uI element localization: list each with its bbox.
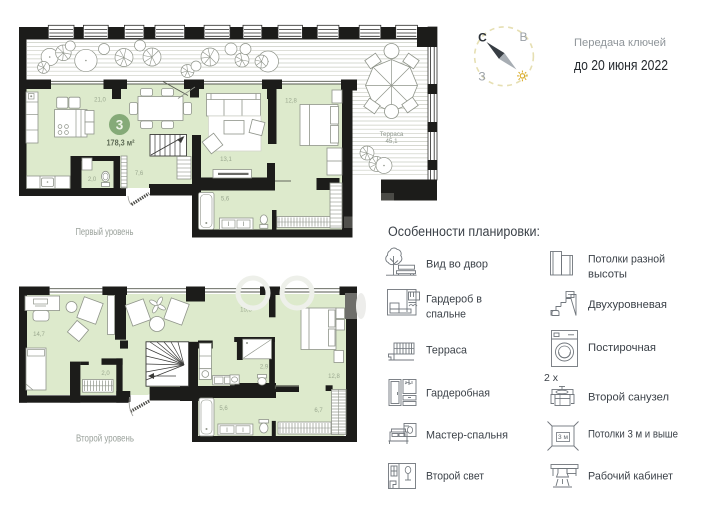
svg-text:6,7: 6,7 bbox=[314, 408, 323, 414]
svg-text:высоты: высоты bbox=[588, 269, 627, 281]
svg-text:5,6: 5,6 bbox=[219, 406, 228, 412]
svg-text:Первый уровень: Первый уровень bbox=[76, 227, 134, 238]
svg-text:Мастер-спальня: Мастер-спальня bbox=[426, 430, 508, 442]
svg-text:Второй свет: Второй свет bbox=[426, 471, 484, 483]
svg-text:Двухуровневая: Двухуровневая bbox=[588, 299, 667, 311]
svg-text:2,9: 2,9 bbox=[260, 365, 269, 371]
svg-text:Постирочная: Постирочная bbox=[588, 342, 656, 354]
svg-text:2,0: 2,0 bbox=[101, 371, 110, 377]
svg-text:Потолки 3 м и выше: Потолки 3 м и выше bbox=[588, 429, 678, 441]
svg-text:7,6: 7,6 bbox=[135, 171, 144, 177]
svg-text:Гардеробная: Гардеробная bbox=[426, 388, 490, 400]
svg-text:12,8: 12,8 bbox=[328, 374, 340, 380]
svg-text:3: 3 bbox=[116, 118, 124, 133]
svg-text:С: С bbox=[478, 31, 487, 45]
svg-text:Терраса: Терраса bbox=[426, 345, 468, 357]
svg-text:Вид во двор: Вид во двор bbox=[426, 259, 488, 271]
svg-text:13,1: 13,1 bbox=[220, 157, 232, 163]
svg-text:Передача ключей: Передача ключей bbox=[574, 37, 666, 49]
svg-text:Гардероб в: Гардероб в bbox=[426, 294, 482, 306]
svg-text:45,1: 45,1 bbox=[385, 138, 398, 145]
svg-text:12,8: 12,8 bbox=[285, 99, 297, 105]
svg-text:2,0: 2,0 bbox=[88, 177, 97, 183]
svg-text:З: З bbox=[478, 70, 485, 84]
svg-text:3 м: 3 м bbox=[558, 434, 568, 441]
svg-text:до 20 июня 2022: до 20 июня 2022 bbox=[574, 57, 668, 74]
svg-text:Потолки разной: Потолки разной bbox=[588, 254, 665, 266]
svg-text:Терраса: Терраса bbox=[380, 131, 404, 138]
svg-text:Второй уровень: Второй уровень bbox=[76, 434, 134, 445]
svg-text:спальне: спальне bbox=[426, 309, 466, 321]
svg-text:Особенности планировки:: Особенности планировки: bbox=[388, 224, 540, 239]
svg-text:2 х: 2 х bbox=[544, 372, 559, 384]
svg-text:5,6: 5,6 bbox=[221, 197, 230, 203]
svg-text:Рабочий кабинет: Рабочий кабинет bbox=[588, 471, 673, 483]
svg-text:14,7: 14,7 bbox=[33, 332, 45, 338]
svg-text:21,0: 21,0 bbox=[94, 98, 106, 104]
svg-text:В: В bbox=[519, 30, 527, 44]
svg-text:Второй санузел: Второй санузел bbox=[588, 392, 669, 404]
svg-text:178,3 м²: 178,3 м² bbox=[107, 138, 135, 148]
